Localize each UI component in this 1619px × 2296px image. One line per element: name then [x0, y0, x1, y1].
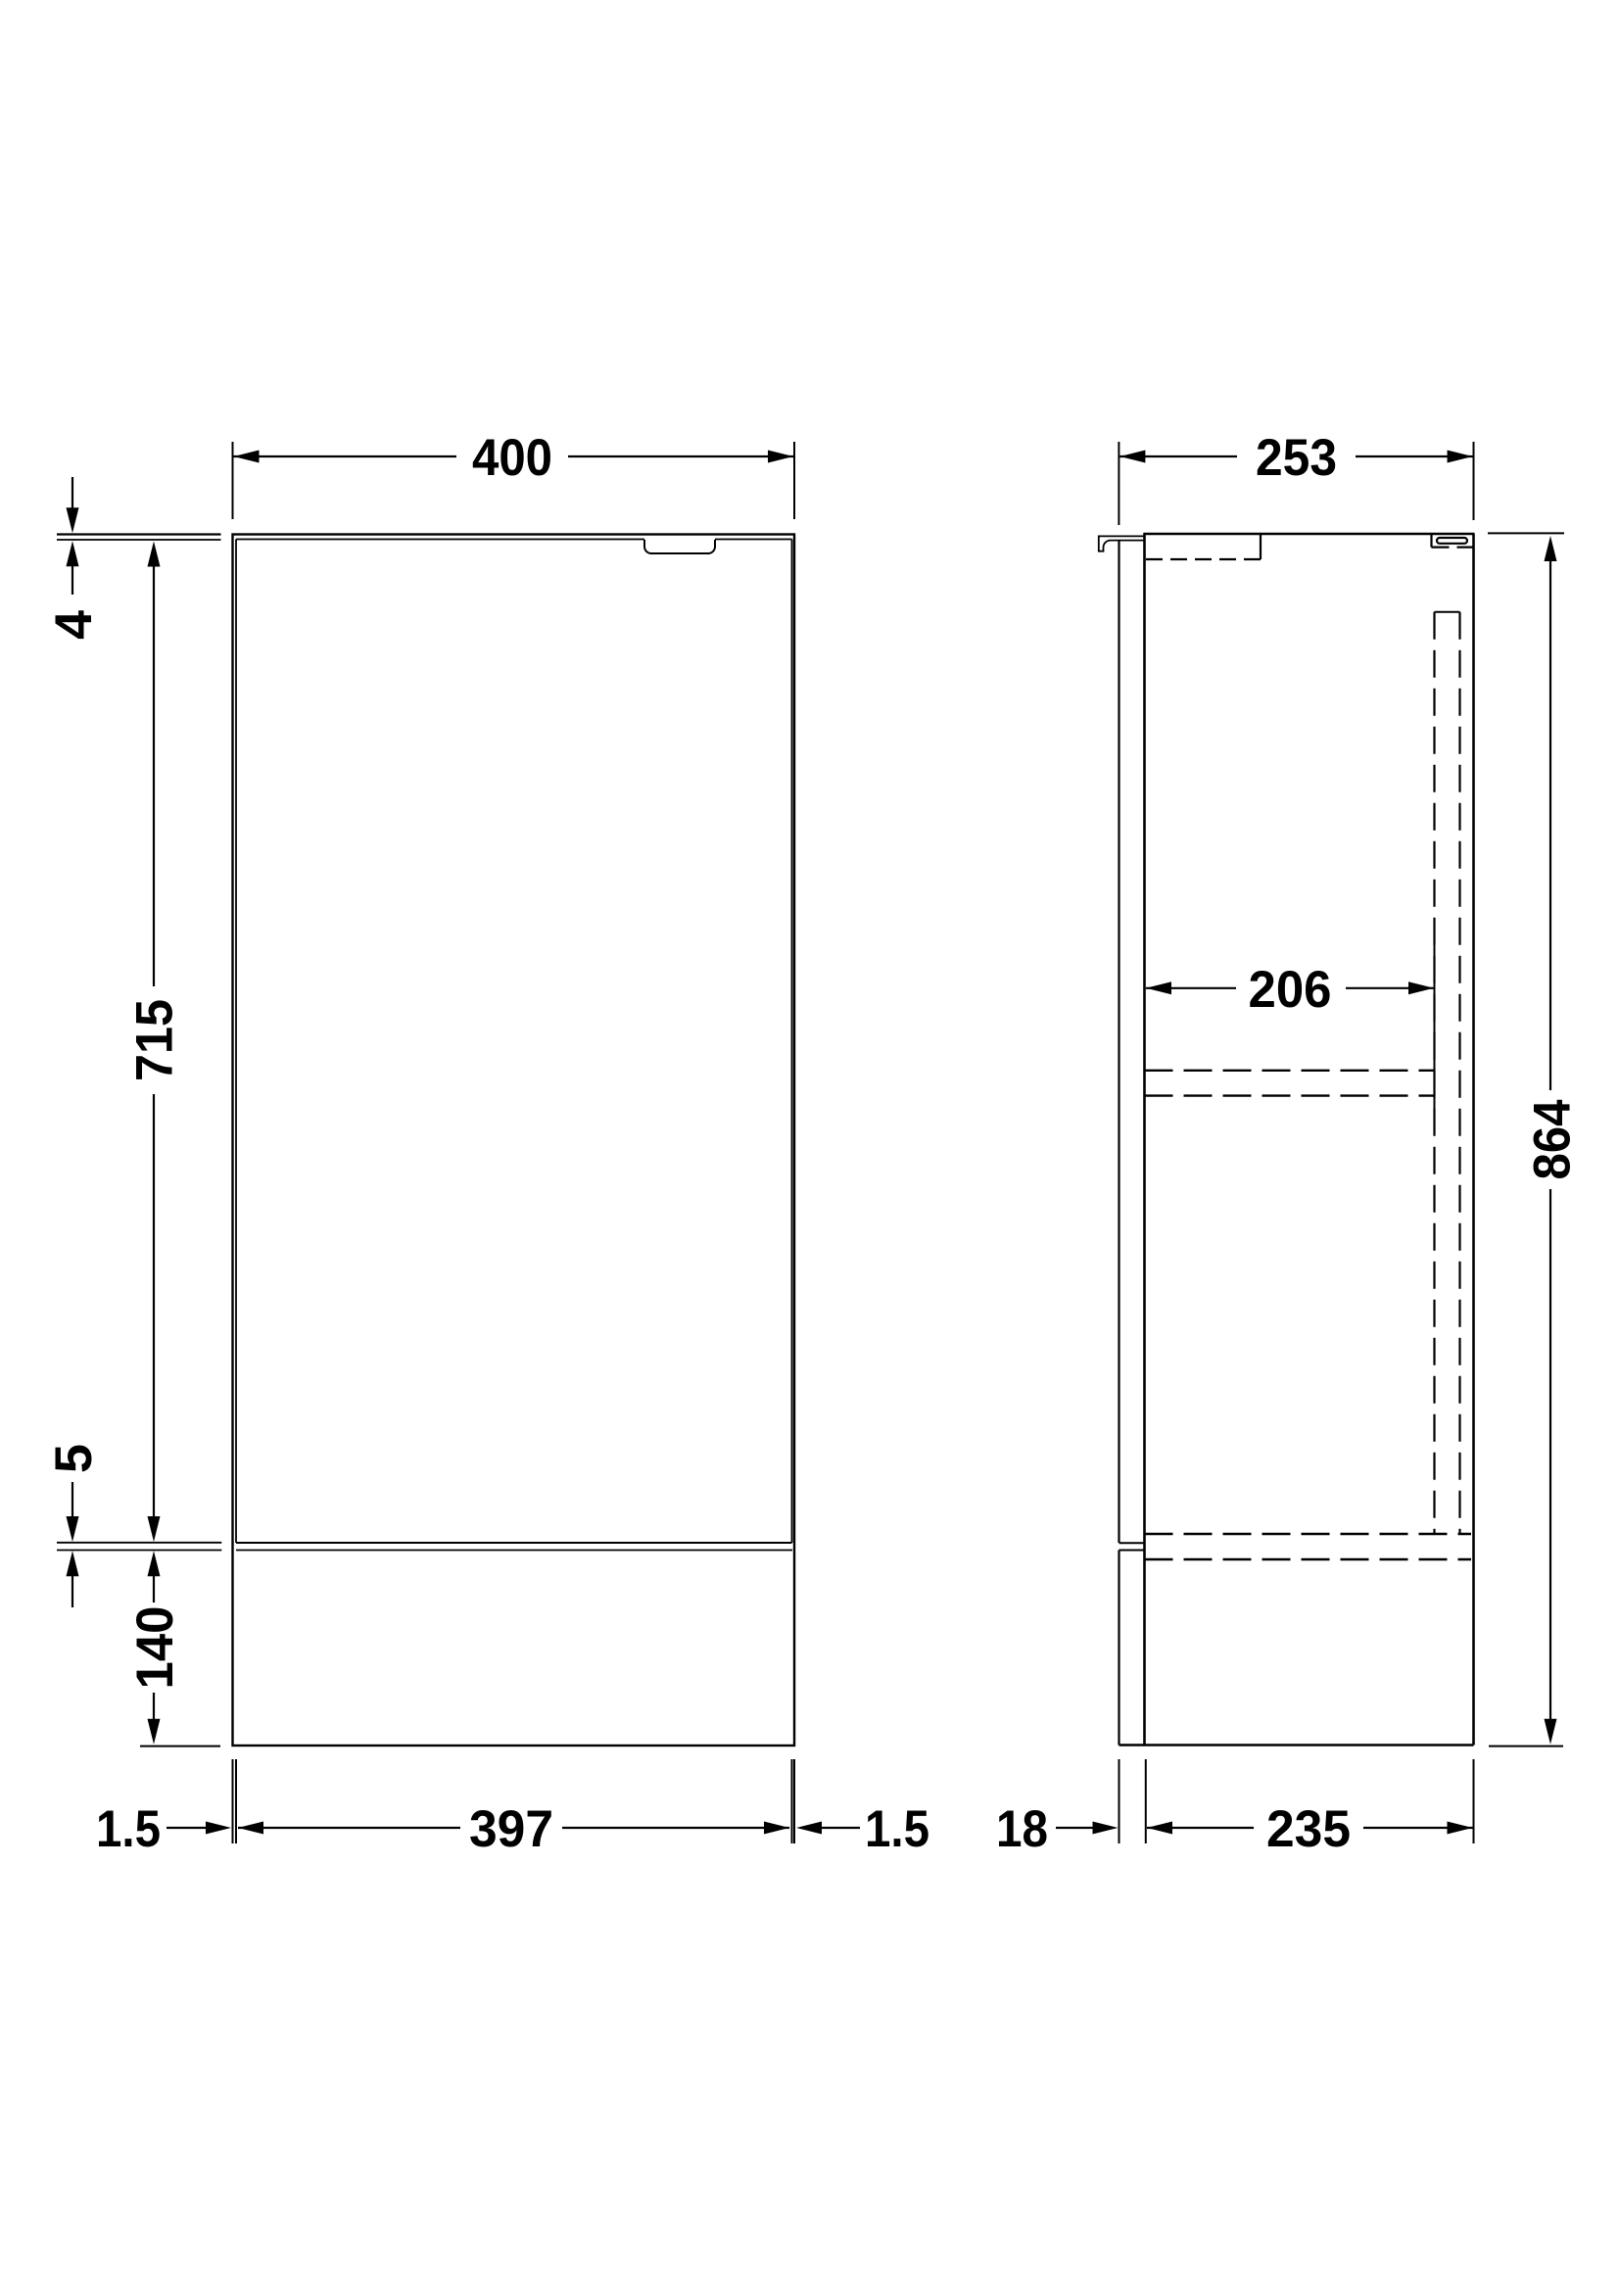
svg-text:864: 864: [1524, 1099, 1582, 1179]
svg-text:5: 5: [45, 1444, 103, 1473]
svg-text:253: 253: [1256, 429, 1337, 487]
svg-text:206: 206: [1249, 961, 1332, 1019]
svg-text:1.5: 1.5: [96, 1800, 161, 1858]
svg-text:235: 235: [1266, 1800, 1351, 1858]
svg-text:18: 18: [996, 1800, 1048, 1858]
svg-text:400: 400: [472, 429, 552, 487]
svg-text:1.5: 1.5: [865, 1800, 929, 1858]
svg-text:4: 4: [45, 609, 103, 640]
svg-text:715: 715: [126, 999, 184, 1081]
svg-text:140: 140: [126, 1606, 184, 1690]
svg-text:397: 397: [469, 1800, 553, 1858]
